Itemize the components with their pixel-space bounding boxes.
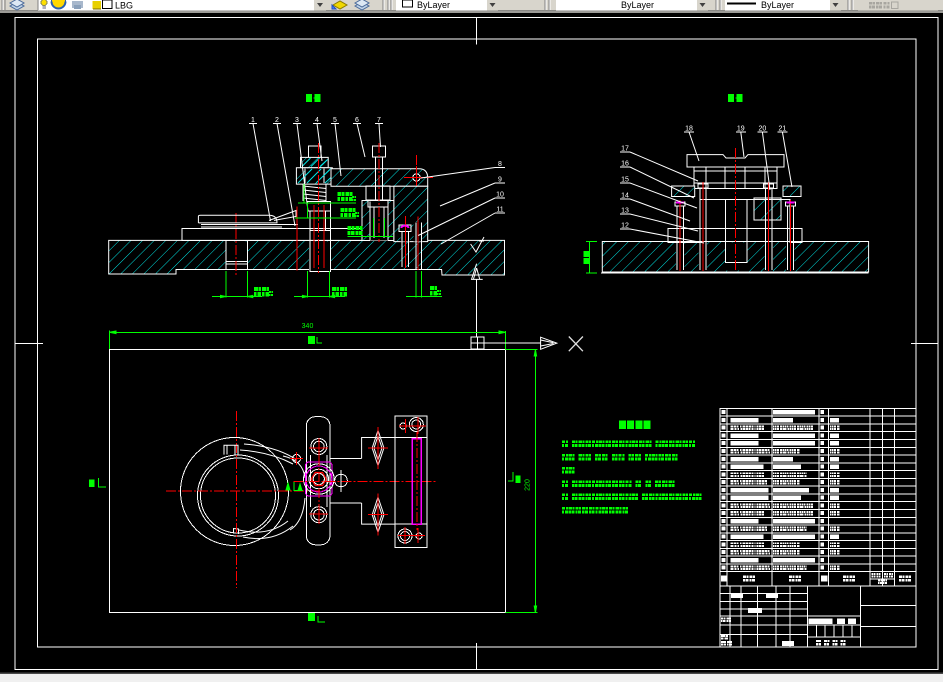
svg-text:15: 15 bbox=[621, 177, 629, 184]
svg-text:3: 3 bbox=[295, 117, 299, 124]
svg-text:ByLayer: ByLayer bbox=[417, 0, 450, 10]
svg-text:6: 6 bbox=[355, 117, 359, 124]
svg-text:340: 340 bbox=[302, 323, 314, 330]
svg-text:9: 9 bbox=[498, 177, 502, 184]
svg-text:11: 11 bbox=[496, 207, 503, 214]
svg-text:13: 13 bbox=[621, 208, 629, 215]
svg-text:19: 19 bbox=[737, 126, 745, 133]
svg-text:4: 4 bbox=[315, 117, 319, 124]
svg-text:16: 16 bbox=[621, 161, 629, 168]
svg-text:1: 1 bbox=[251, 117, 255, 124]
svg-text:7: 7 bbox=[377, 117, 381, 124]
svg-text:17: 17 bbox=[621, 146, 629, 153]
svg-text:12: 12 bbox=[621, 223, 629, 230]
svg-text:18: 18 bbox=[685, 126, 693, 133]
svg-text:LBG: LBG bbox=[115, 1, 133, 11]
svg-text:8: 8 bbox=[498, 161, 502, 168]
svg-text:2: 2 bbox=[275, 117, 279, 124]
svg-text:ByLayer: ByLayer bbox=[761, 0, 794, 10]
svg-text:220: 220 bbox=[525, 479, 532, 491]
svg-text:14: 14 bbox=[621, 193, 629, 200]
svg-text:5: 5 bbox=[333, 117, 337, 124]
svg-text:20: 20 bbox=[759, 126, 767, 133]
svg-text:21: 21 bbox=[779, 126, 787, 133]
svg-text:ByLayer: ByLayer bbox=[621, 0, 654, 10]
svg-text:10: 10 bbox=[496, 192, 504, 199]
